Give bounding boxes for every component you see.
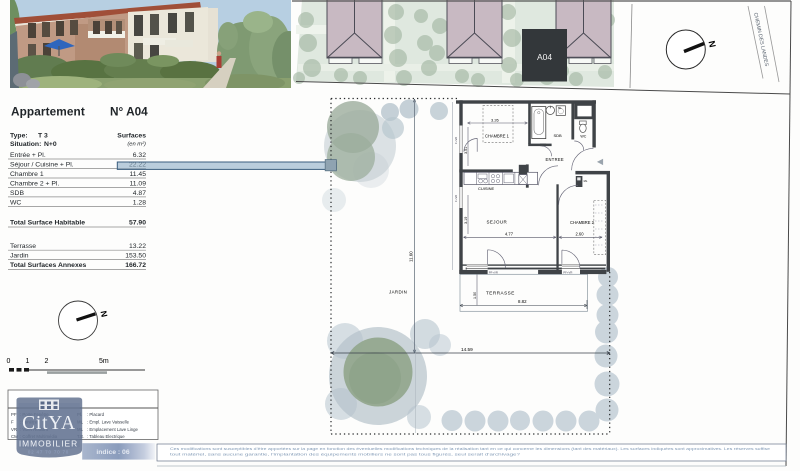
svg-text:A04: A04	[537, 52, 552, 62]
svg-text:F: F	[11, 419, 14, 424]
svg-text:VR: VR	[11, 427, 17, 432]
svg-text:2.60: 2.60	[576, 232, 585, 237]
svg-text:N° A04: N° A04	[110, 105, 148, 119]
svg-text:PF+VR: PF+VR	[489, 271, 498, 275]
svg-text:8.82: 8.82	[518, 299, 527, 304]
svg-text:Chambre 1: Chambre 1	[10, 171, 44, 178]
svg-text:: Emplacement Lave Linge: : Emplacement Lave Linge	[87, 427, 138, 432]
svg-text:ML: ML	[558, 106, 562, 110]
svg-text:CHAMBRE 2: CHAMBRE 2	[570, 220, 595, 225]
svg-text:N+0: N+0	[44, 141, 57, 148]
svg-text:PF+VR: PF+VR	[563, 270, 572, 274]
svg-text:Séjour / Cuisine + Pl.: Séjour / Cuisine + Pl.	[10, 161, 74, 168]
svg-text:11.09: 11.09	[129, 180, 146, 187]
svg-text:13.22: 13.22	[129, 243, 146, 250]
svg-text:N: N	[99, 310, 110, 318]
svg-text:(en m²): (en m²)	[127, 142, 146, 148]
svg-text:N: N	[707, 40, 718, 48]
svg-text:Terrasse: Terrasse	[10, 243, 36, 250]
svg-text:Total Surface Habitable: Total Surface Habitable	[10, 220, 85, 227]
svg-text:TERRASSE: TERRASSE	[486, 291, 515, 296]
svg-text:WC: WC	[10, 199, 21, 206]
svg-text:1.50: 1.50	[473, 292, 477, 299]
svg-text:166.72: 166.72	[125, 262, 146, 269]
svg-text:Situation:: Situation:	[10, 141, 41, 148]
svg-text:: Empl. Lave Vaisselle: : Empl. Lave Vaisselle	[87, 419, 130, 424]
svg-text:57.90: 57.90	[129, 220, 146, 227]
svg-text:4.87: 4.87	[133, 190, 146, 197]
svg-text:Chambre 2 + Pl.: Chambre 2 + Pl.	[10, 180, 59, 187]
svg-text:1: 1	[26, 358, 30, 365]
svg-text:F+VR: F+VR	[454, 137, 458, 144]
svg-text:11.45: 11.45	[129, 171, 146, 178]
svg-text:ML: ML	[584, 179, 588, 183]
svg-text:F+VR: F+VR	[454, 195, 458, 202]
svg-text:0: 0	[7, 358, 11, 365]
svg-text:Appartement: Appartement	[11, 105, 85, 119]
svg-text:ENTREE: ENTREE	[546, 157, 564, 162]
svg-text:Total Surfaces Annexes: Total Surfaces Annexes	[10, 262, 87, 269]
svg-text:4.77: 4.77	[505, 232, 514, 237]
svg-text:JARDIN: JARDIN	[389, 290, 407, 295]
svg-text:3.19: 3.19	[464, 217, 468, 224]
svg-text:SEJOUR: SEJOUR	[487, 220, 508, 225]
svg-text:IMMOBILIER: IMMOBILIER	[19, 439, 78, 449]
svg-text:: Placard: : Placard	[87, 412, 105, 417]
svg-text:indice : 06: indice : 06	[96, 449, 129, 456]
svg-text:Jardin: Jardin	[10, 252, 29, 259]
svg-text:02 47 70 70 70: 02 47 70 70 70	[28, 450, 69, 455]
svg-text:6.32: 6.32	[133, 152, 146, 159]
svg-text:CitYA: CitYA	[22, 413, 76, 434]
svg-text:T 3: T 3	[38, 133, 48, 140]
svg-text:PF: PF	[11, 412, 17, 417]
svg-text:Type:: Type:	[10, 133, 28, 140]
svg-text:WC: WC	[580, 135, 586, 139]
svg-text:14.59: 14.59	[461, 347, 473, 352]
svg-text:CUISINE: CUISINE	[478, 186, 495, 191]
svg-text:1.28: 1.28	[133, 199, 146, 206]
svg-text:Surfaces: Surfaces	[117, 133, 146, 140]
svg-text:Ces modifications sont suscept: Ces modifications sont susceptibles d'êt…	[170, 447, 770, 451]
svg-text:Entrée + Pl.: Entrée + Pl.	[10, 152, 46, 159]
svg-text:3.26: 3.26	[491, 117, 500, 122]
svg-text:SDB: SDB	[554, 133, 563, 138]
svg-text:SDB: SDB	[10, 190, 24, 197]
svg-text:5m: 5m	[99, 358, 109, 365]
svg-text:153.50: 153.50	[125, 252, 146, 259]
svg-text:tout matériel, sans aucune gar: tout matériel, sans aucune garantie, l'i…	[170, 453, 520, 457]
svg-text:: Tableau Electrique: : Tableau Electrique	[87, 434, 125, 439]
svg-text:11.60: 11.60	[409, 251, 414, 262]
svg-text:CHAMBRE 1: CHAMBRE 1	[485, 134, 510, 139]
svg-text:2: 2	[45, 358, 49, 365]
